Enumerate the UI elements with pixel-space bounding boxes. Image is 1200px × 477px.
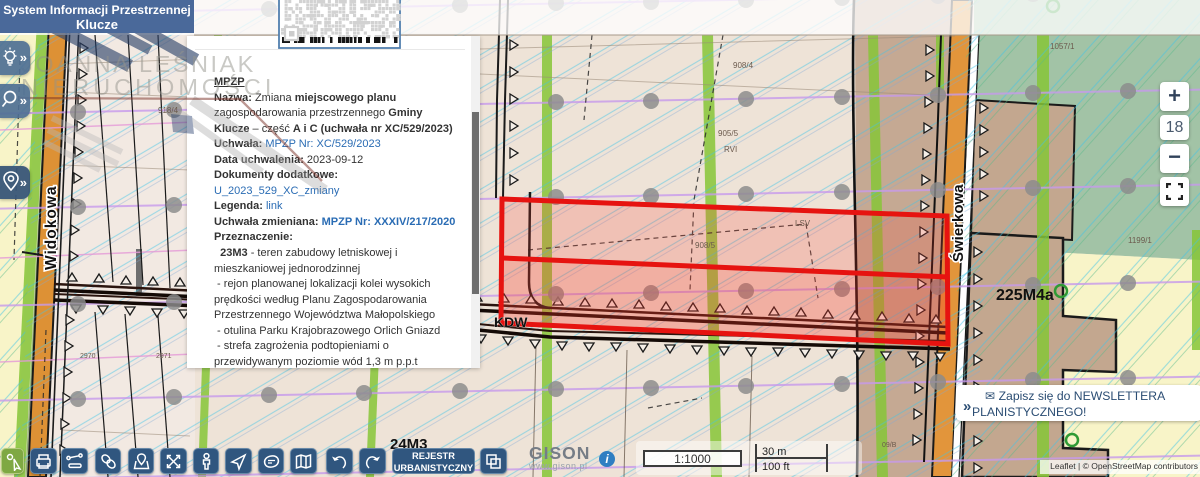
svg-text:RVI: RVI	[724, 145, 737, 154]
svg-text:NIERUCHOMOŚCI: NIERUCHOMOŚCI	[21, 73, 275, 100]
svg-text:30 m: 30 m	[762, 446, 786, 458]
svg-text:09/B: 09/B	[882, 442, 897, 449]
svg-text:2971: 2971	[156, 353, 172, 360]
svg-text:LSV: LSV	[795, 219, 811, 228]
svg-text:KDW: KDW	[494, 314, 528, 330]
svg-text:Świerkowa: Świerkowa	[949, 184, 967, 262]
svg-text:908/4: 908/4	[733, 61, 754, 70]
svg-text:1057/1: 1057/1	[1050, 42, 1075, 51]
svg-text:100 ft: 100 ft	[762, 461, 790, 473]
svg-text:1199/1: 1199/1	[1128, 236, 1152, 245]
svg-text:908/5: 908/5	[695, 241, 716, 250]
svg-text:905/5: 905/5	[718, 129, 739, 138]
svg-text:2970: 2970	[80, 353, 96, 360]
svg-text:JOANNA LEŚNIAK: JOANNA LEŚNIAK	[21, 50, 256, 77]
svg-text:225M4a: 225M4a	[996, 287, 1054, 304]
